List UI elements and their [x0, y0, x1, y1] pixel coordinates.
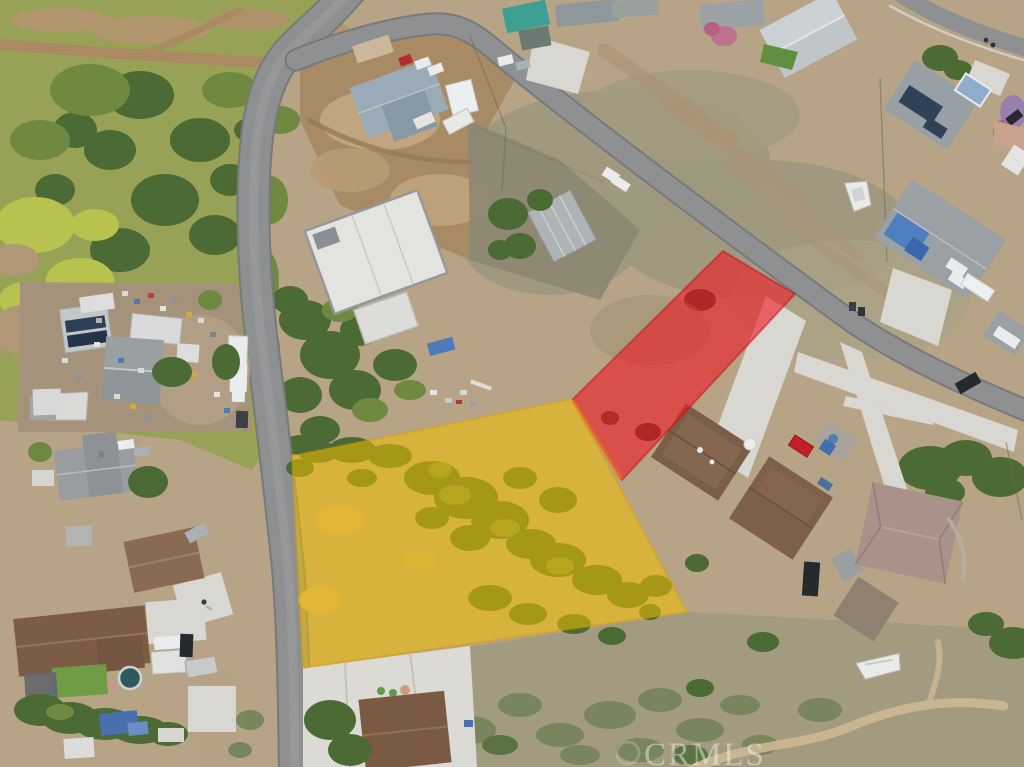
pad-stain [400, 685, 410, 695]
lawn [52, 664, 108, 698]
blue-item [464, 720, 473, 727]
trash-bin [849, 302, 856, 311]
junk-pile [158, 728, 184, 742]
aerial-photo: CRMLS [0, 0, 1024, 767]
patio-umbrella [744, 438, 756, 450]
parked-car [236, 411, 249, 428]
ac-unit [697, 447, 703, 453]
white-shed [32, 470, 54, 486]
aerial-photo-canvas: CRMLS [0, 0, 1024, 767]
bougainvillea-tree [704, 22, 720, 36]
pad-marking-green [377, 687, 385, 695]
pedestrian [984, 38, 989, 43]
ac-unit [710, 460, 715, 465]
pedestrian [991, 43, 996, 48]
black-suv [802, 561, 820, 596]
above-ground-pool [119, 667, 141, 689]
watermark-text: CRMLS [644, 737, 766, 767]
gray-shed [65, 525, 92, 547]
pickup-truck [180, 634, 194, 657]
person [201, 599, 206, 604]
trash-bin [858, 307, 865, 316]
horse-trailer [63, 737, 94, 759]
parked-car [232, 383, 246, 402]
blue-tarp-pile [127, 721, 148, 736]
box-trailer [33, 389, 62, 416]
white-shed [452, 753, 476, 767]
